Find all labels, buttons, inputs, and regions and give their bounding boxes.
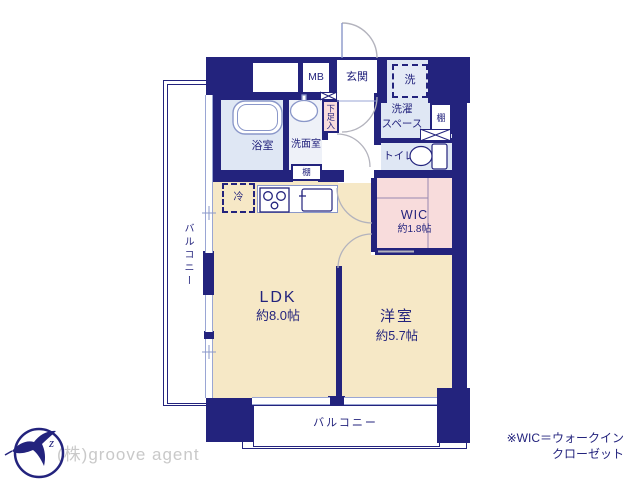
washer-label: 洗 (392, 64, 428, 98)
wall (213, 93, 337, 100)
laundry-label-line1: 洗濯 (372, 102, 432, 117)
entrance-porch-alcove (253, 63, 298, 92)
western-room-label: 洋室 (342, 308, 452, 326)
wall (213, 170, 293, 182)
laundry-label-line2: スペース (372, 117, 432, 132)
shelf-laundry-label: 棚 (430, 103, 452, 134)
wic-note-line1: ※WIC＝ウォークイン (507, 431, 624, 447)
wall (213, 57, 457, 60)
western-room-size-label: 約5.7帖 (342, 329, 452, 344)
wall (437, 388, 470, 443)
window (205, 295, 213, 332)
toilet-label: トイレ (379, 149, 419, 163)
wall (206, 398, 254, 442)
wall (375, 248, 466, 255)
wic-size-label: 約1.8帖 (377, 223, 452, 236)
cross-shelf-top (320, 92, 337, 100)
wall (374, 170, 466, 178)
entrance-label: 玄関 (337, 70, 377, 86)
company-logo-bird-icon: z (5, 429, 63, 477)
wall (204, 331, 214, 339)
svg-text:z: z (48, 435, 54, 450)
ldk-label: LDK (213, 288, 343, 308)
shoe-cabinet-label: 下足入 (322, 101, 339, 133)
wic-label: WIC (377, 207, 452, 223)
company-name: (株)groove agent (57, 443, 217, 467)
wall (283, 93, 289, 170)
window (205, 95, 213, 253)
washroom-label: 洗面室 (287, 138, 325, 151)
wic-note-line2: クローゼット (507, 447, 624, 463)
window (205, 339, 213, 398)
ldk-size-label: 約8.0帖 (213, 308, 343, 324)
refrigerator-label: 冷 (222, 183, 255, 213)
entrance-door-arc (342, 23, 377, 58)
wall (452, 100, 467, 392)
wall (328, 396, 345, 406)
balcony-left-label: バルコニー (179, 213, 195, 297)
wic-note: ※WIC＝ウォークイン クローゼット (507, 431, 624, 462)
kitchen-counter (257, 185, 338, 213)
bathroom-label: 浴室 (240, 140, 285, 154)
window (252, 397, 330, 405)
balcony-bottom-label: バルコニー (253, 417, 438, 431)
meter-box-label: MB (303, 63, 329, 92)
window (344, 397, 437, 405)
shelf-washroom-label: 棚 (291, 164, 322, 181)
wall (428, 57, 470, 103)
room-washroom (289, 100, 322, 170)
room-bathroom (221, 100, 283, 170)
floor-plan: バルコニー バルコニー 下足入 棚 棚 冷 洗 (0, 0, 640, 480)
